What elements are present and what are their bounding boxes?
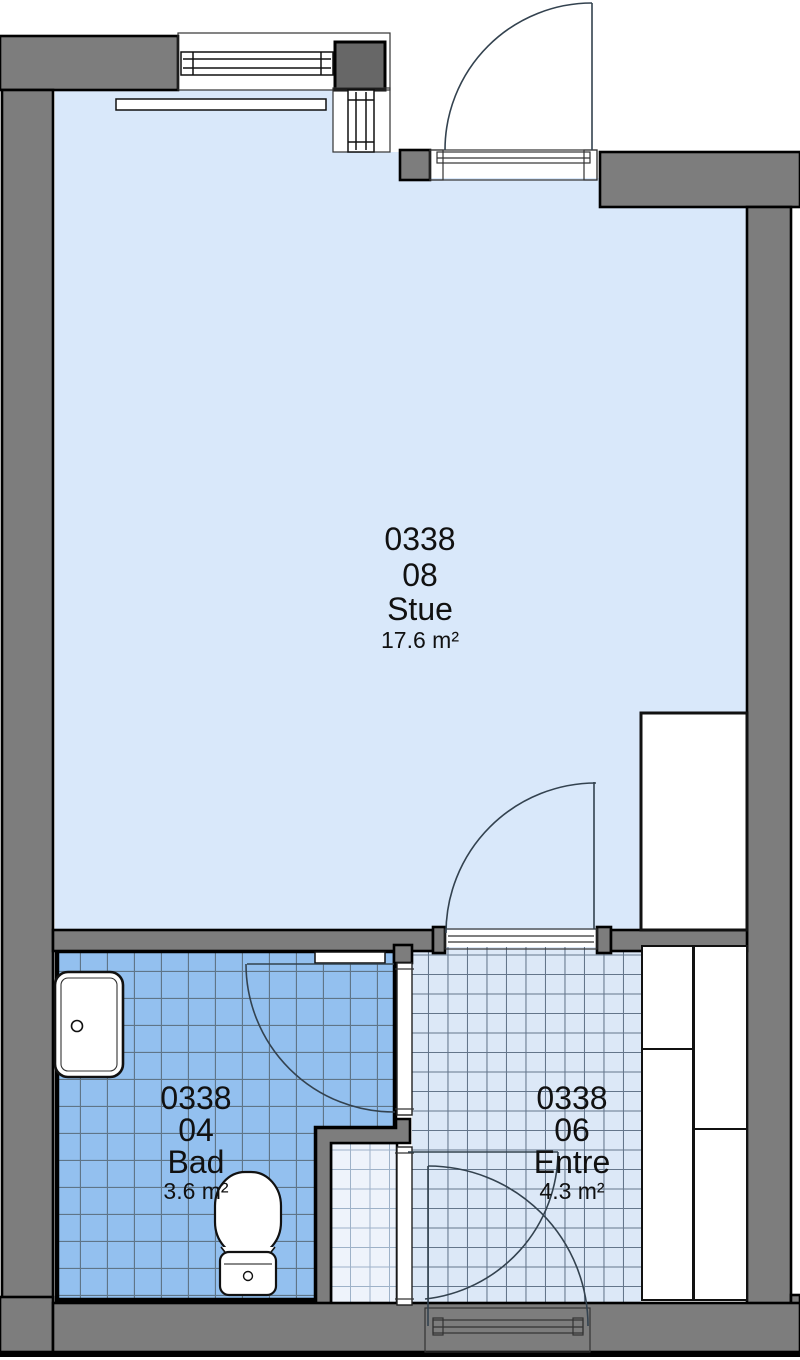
nook-doorway-frame [395,1147,414,1305]
floor-plan: 0338 08 Stue 17.6 m² 0338 04 Bad 3.6 m² … [0,0,800,1360]
entre-name: Entre [534,1144,610,1180]
plan-bottom-boundary [0,1352,800,1357]
wall-top-left [0,36,178,90]
entre-number: 06 [554,1112,590,1148]
top-door-arc [445,3,592,150]
mid-door-threshold [445,929,597,949]
wall-stue-bad [53,930,433,951]
washbasin-icon [55,972,123,1077]
wall-top-door-jamb [400,150,430,180]
wall-bottom-left-corner [0,1297,53,1352]
entre-floor-tiles [412,947,641,1310]
door-post-left [433,927,445,953]
wall-top-right [600,152,800,207]
wall-bad-door-post [394,945,412,963]
stue-unit: 0338 [384,521,455,557]
wall-bottom [53,1303,800,1352]
radiator-icon [116,99,326,110]
window-vertical-icon [348,90,374,152]
top-door-threshold [430,150,597,180]
bad-name: Bad [168,1144,225,1180]
bad-number: 04 [178,1112,214,1148]
bad-area: 3.6 m² [163,1178,229,1204]
bath-shelf-icon [315,952,385,963]
wall-left [2,90,53,1305]
stue-wardrobe-icon [641,713,747,930]
stue-area: 17.6 m² [381,627,459,653]
bad-unit: 0338 [160,1080,231,1116]
nook-floor-tiles [331,1143,397,1305]
stue-number: 08 [402,557,438,593]
entre-unit: 0338 [536,1080,607,1116]
door-post-right [597,927,611,953]
wall-dark-column [335,42,385,90]
stue-name: Stue [387,591,453,627]
bad-doorway-frame [395,963,414,1115]
entre-area: 4.3 m² [539,1178,605,1204]
window-horizontal-icon [181,52,333,75]
entre-wardrobe-icon [642,946,747,1300]
wall-right [747,207,791,1352]
